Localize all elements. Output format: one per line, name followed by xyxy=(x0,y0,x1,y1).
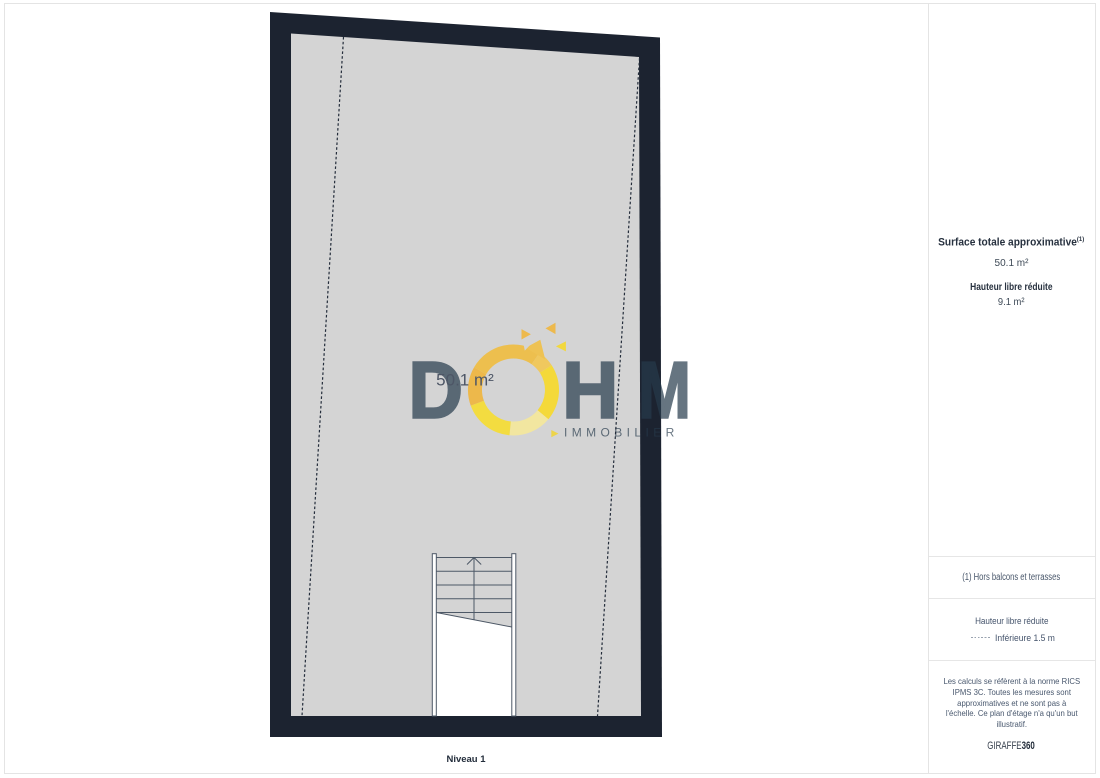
svg-text:H: H xyxy=(562,346,618,435)
svg-text:M: M xyxy=(638,346,691,435)
svg-text:D: D xyxy=(409,346,463,435)
svg-text:IMMOBILIER: IMMOBILIER xyxy=(564,426,679,440)
svg-text:50.1 m²: 50.1 m² xyxy=(436,371,494,390)
